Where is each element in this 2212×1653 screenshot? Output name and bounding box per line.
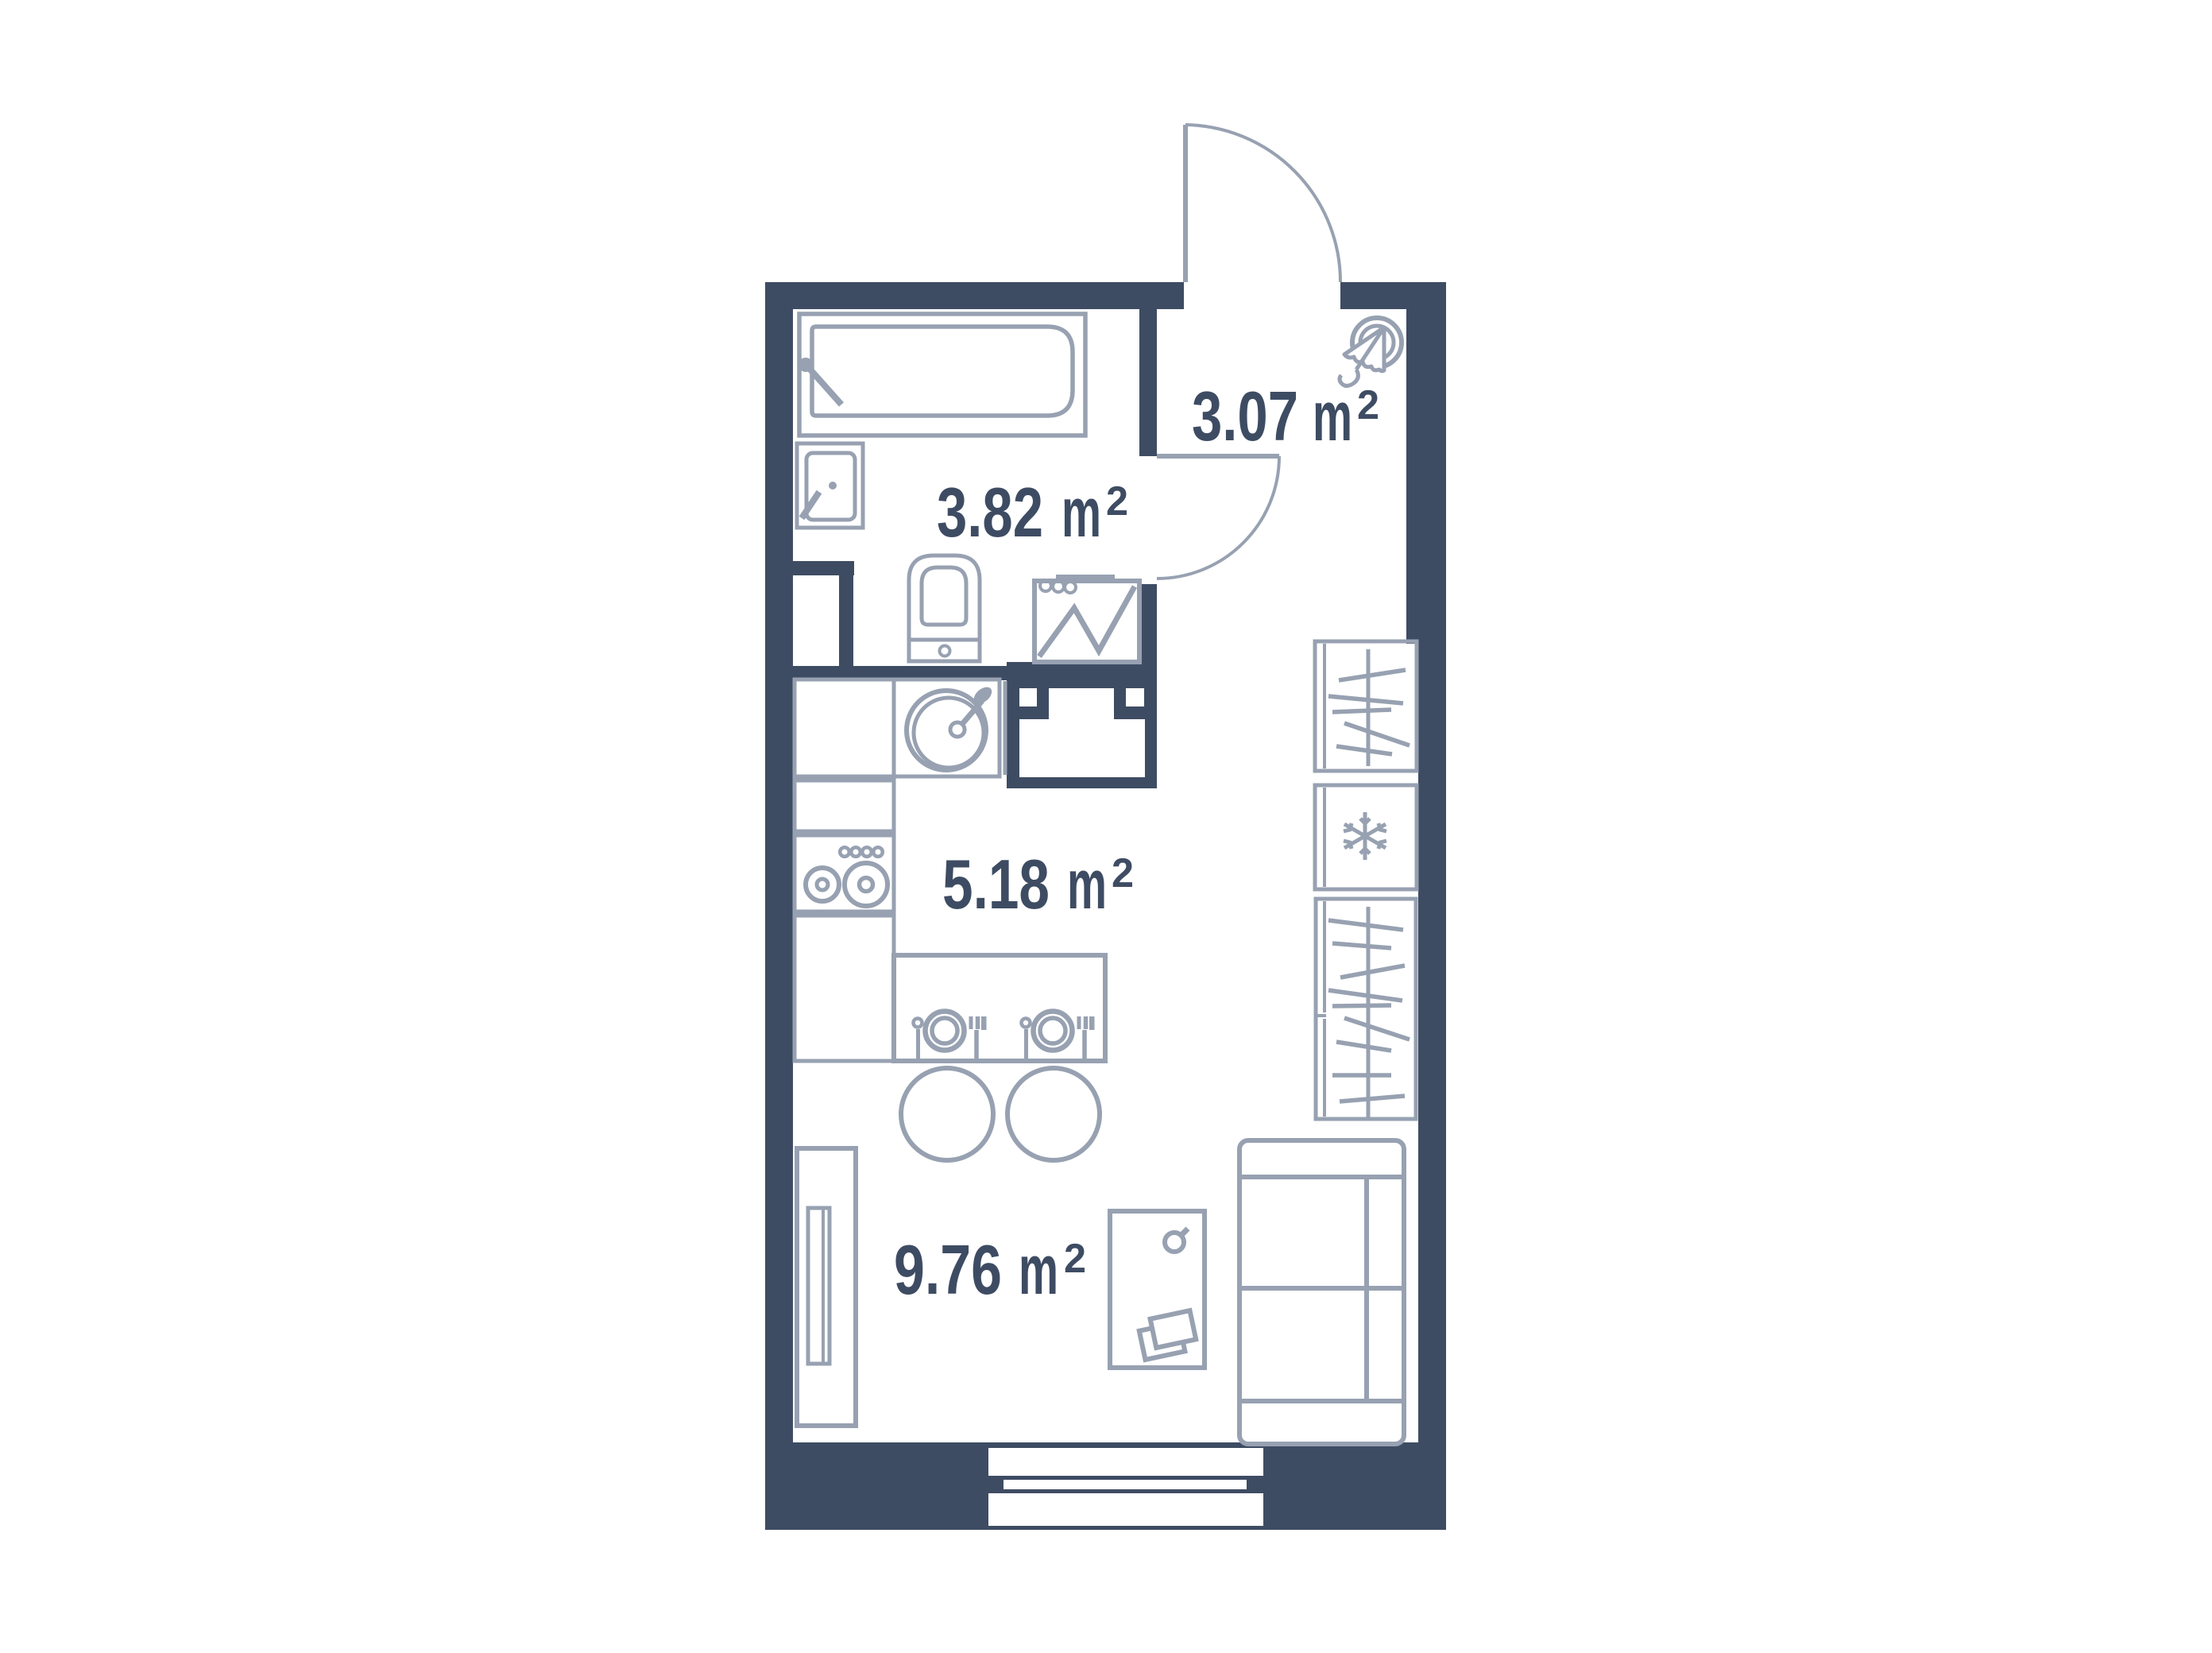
- svg-text:m: m: [1062, 473, 1101, 552]
- svg-text:2: 2: [1064, 1236, 1086, 1282]
- svg-text:5.18: 5.18: [942, 845, 1050, 923]
- svg-text:9.76: 9.76: [894, 1230, 1002, 1309]
- svg-text:2: 2: [1112, 850, 1134, 896]
- svg-text:m: m: [1313, 377, 1352, 455]
- svg-text:m: m: [1019, 1230, 1058, 1309]
- svg-text:2: 2: [1357, 382, 1379, 428]
- svg-text:2: 2: [1106, 478, 1128, 525]
- svg-text:m: m: [1067, 845, 1107, 923]
- svg-text:3.82: 3.82: [937, 473, 1043, 552]
- svg-text:3.07: 3.07: [1192, 377, 1298, 455]
